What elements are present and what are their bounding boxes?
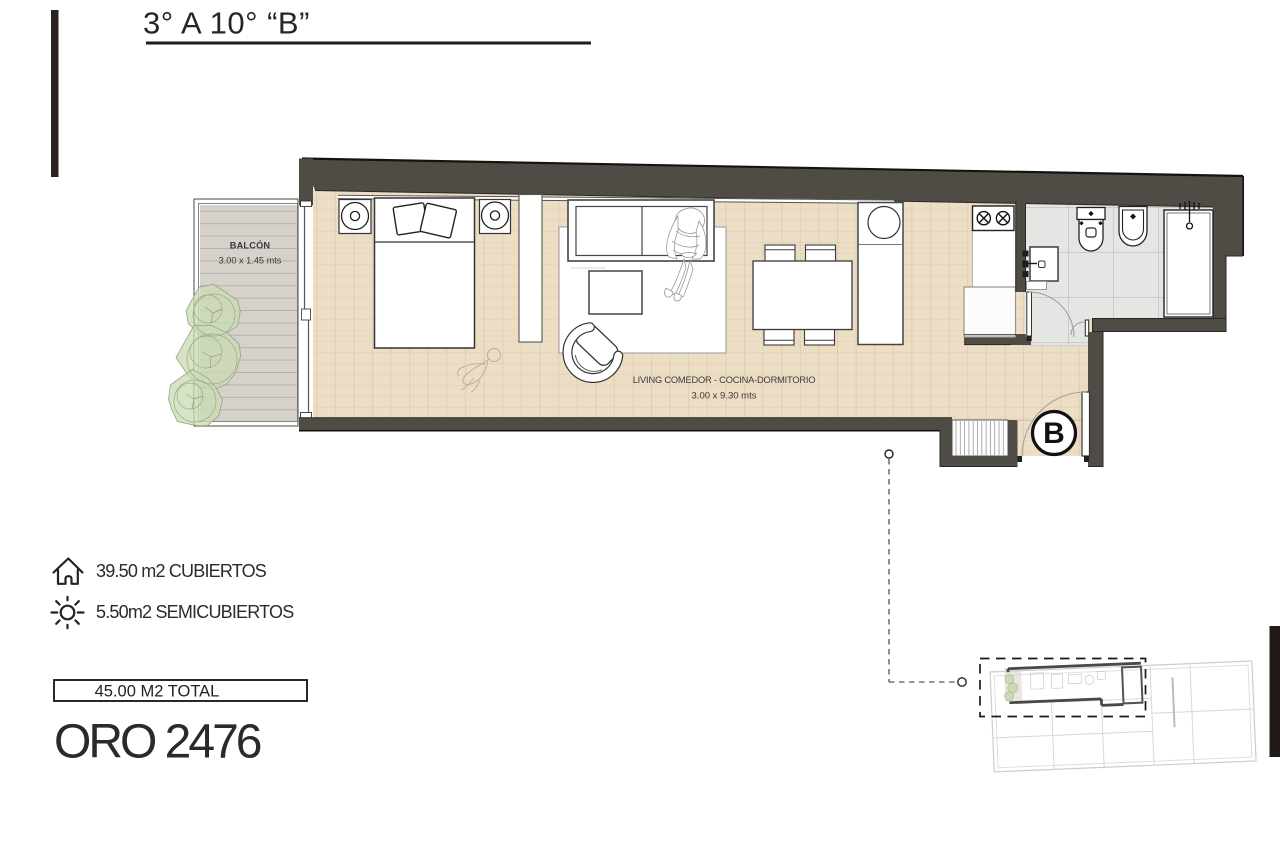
svg-text:B: B [1043,417,1065,450]
svg-text:3.00 x 1.45 mts: 3.00 x 1.45 mts [219,256,282,266]
svg-text:ORO 2476: ORO 2476 [54,716,261,769]
svg-text:39.50 m2 CUBIERTOS: 39.50 m2 CUBIERTOS [96,561,267,581]
svg-text:45.00 M2 TOTAL: 45.00 M2 TOTAL [95,683,220,701]
svg-text:BALCÓN: BALCÓN [230,240,271,251]
svg-text:5.50m2 SEMICUBIERTOS: 5.50m2 SEMICUBIERTOS [96,602,294,622]
svg-text:3.00 x 9.30 mts: 3.00 x 9.30 mts [692,391,757,402]
svg-text:3° A 10° “B”: 3° A 10° “B” [143,6,310,41]
svg-text:LIVING COMEDOR - COCINA-DORMIT: LIVING COMEDOR - COCINA-DORMITORIO [633,375,816,385]
